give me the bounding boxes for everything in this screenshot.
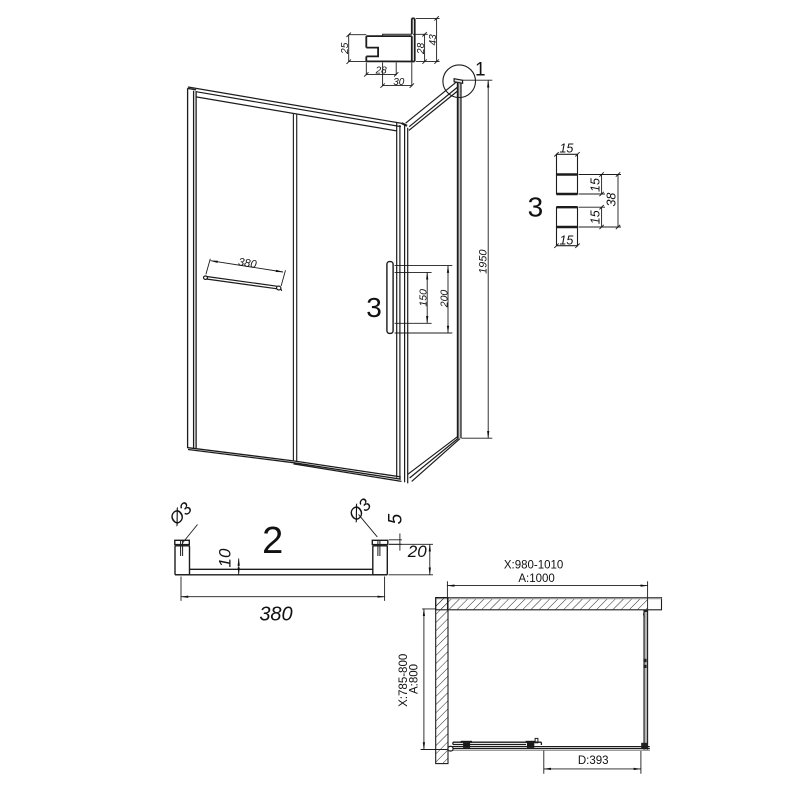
svg-text:3: 3	[366, 292, 382, 323]
svg-text:38: 38	[605, 193, 619, 207]
svg-text:200: 200	[438, 290, 450, 309]
svg-text:3: 3	[528, 192, 544, 223]
svg-text:150: 150	[418, 289, 430, 307]
svg-text:28: 28	[375, 66, 388, 77]
svg-text:15: 15	[559, 234, 573, 248]
svg-text:1950: 1950	[478, 249, 490, 274]
svg-text:10: 10	[215, 548, 234, 567]
svg-text:A:1000: A:1000	[518, 573, 554, 585]
svg-text:25: 25	[340, 42, 351, 55]
svg-text:15: 15	[589, 210, 603, 224]
svg-text:15: 15	[559, 141, 573, 155]
svg-text:380: 380	[259, 604, 292, 626]
svg-text:30: 30	[393, 77, 405, 88]
svg-text:X:980-1010: X:980-1010	[504, 559, 563, 571]
svg-text:43: 43	[428, 34, 439, 46]
svg-text:5: 5	[385, 513, 406, 524]
svg-text:1: 1	[475, 59, 486, 80]
svg-text:15: 15	[589, 178, 603, 192]
svg-text:20: 20	[407, 542, 427, 561]
svg-text:D:393: D:393	[578, 755, 609, 767]
svg-text:28: 28	[416, 42, 427, 55]
svg-text:2: 2	[262, 520, 283, 562]
svg-text:A:800: A:800	[409, 664, 421, 694]
